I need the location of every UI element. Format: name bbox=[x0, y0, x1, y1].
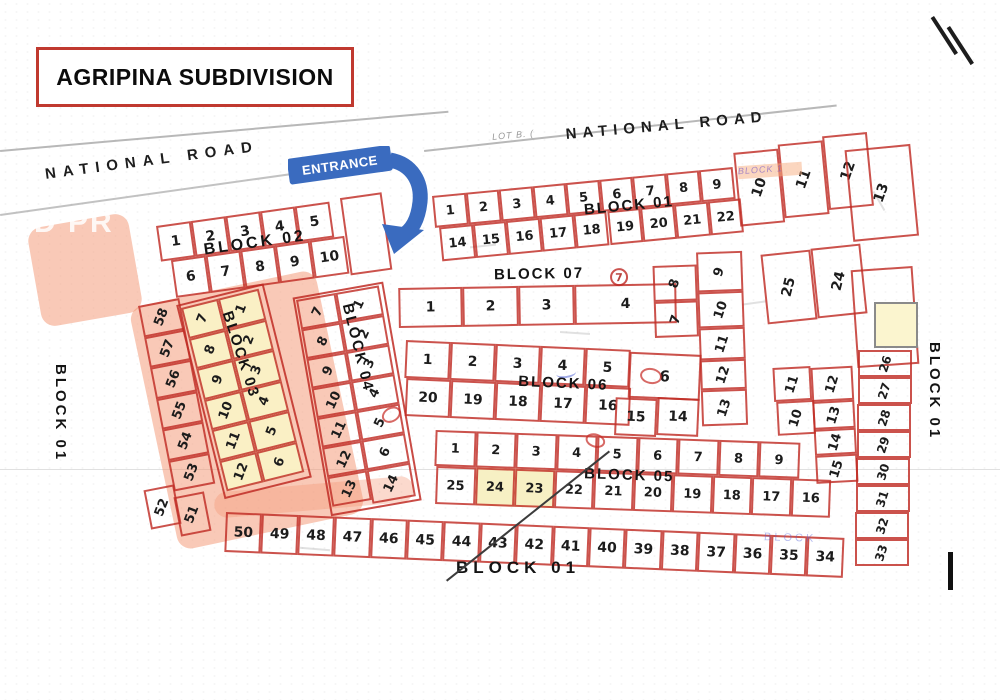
lot-number: 44 bbox=[452, 534, 472, 549]
lot-cell: 15 bbox=[614, 397, 658, 437]
lot-number: 5 bbox=[602, 361, 612, 375]
lot-cell: 48 bbox=[297, 515, 335, 556]
lot-number: 56 bbox=[164, 369, 183, 391]
lot-number: 10 bbox=[787, 407, 805, 428]
lot-number: 17 bbox=[762, 490, 781, 504]
lot-cell: 46 bbox=[370, 518, 408, 559]
lot-cell: 13 bbox=[701, 389, 748, 427]
lot-cell: 3 bbox=[515, 433, 557, 470]
lot-number: 1 bbox=[422, 353, 432, 367]
lot-number: 26 bbox=[877, 354, 894, 374]
lot-number: 14 bbox=[448, 235, 467, 250]
lot-cell: 16 bbox=[790, 478, 831, 517]
lot-number: 7 bbox=[669, 313, 684, 326]
lot-number: 20 bbox=[649, 216, 668, 231]
lot-number: 8 bbox=[254, 259, 266, 274]
lot-number: 34 bbox=[815, 550, 835, 565]
lot-number: 58 bbox=[152, 307, 171, 329]
lot-cell: 25 bbox=[760, 250, 817, 325]
lot-number: 19 bbox=[463, 393, 483, 408]
lot-number: 33 bbox=[873, 543, 890, 563]
lot-number: 14 bbox=[827, 431, 845, 452]
lot-number: 25 bbox=[780, 276, 798, 298]
lot-number: 8 bbox=[668, 277, 683, 290]
lot-cell: 1 bbox=[432, 193, 468, 228]
lot-number: 51 bbox=[183, 503, 202, 525]
lot-number: 18 bbox=[508, 395, 528, 410]
lot-number: 54 bbox=[176, 430, 195, 452]
lot-number: 24 bbox=[830, 270, 848, 292]
subdivision-map: AGRIPINA SUBDIVISION NATIONAL ROAD NATIO… bbox=[0, 0, 1000, 700]
lot-cell: 29 bbox=[857, 431, 911, 458]
lot-number: 35 bbox=[779, 548, 799, 563]
lot-cell: 13 bbox=[845, 144, 920, 242]
lot-number: 40 bbox=[597, 541, 617, 556]
lot-cell: 11 bbox=[772, 366, 812, 402]
lot-cell: 2 bbox=[475, 431, 517, 468]
lot-cell: 19 bbox=[450, 380, 497, 420]
lot-cell: 12 bbox=[700, 359, 747, 391]
lot-number: 13 bbox=[872, 181, 892, 204]
lot-cell: 1 bbox=[404, 340, 451, 380]
lot-number: 9 bbox=[712, 178, 722, 192]
lot-cell: 1 bbox=[156, 221, 196, 262]
lot-number: 14 bbox=[668, 410, 688, 425]
lot-number: 52 bbox=[153, 496, 172, 518]
lot-number: 13 bbox=[715, 397, 733, 418]
lot-number: 24 bbox=[486, 480, 505, 494]
watermark-text: D PR bbox=[34, 206, 114, 240]
lot-number: 6 bbox=[185, 269, 197, 284]
lot-cell: 3 bbox=[499, 186, 535, 221]
lot-number: 19 bbox=[616, 219, 635, 234]
lot-cell: 38 bbox=[661, 530, 699, 571]
lot-number: 32 bbox=[874, 516, 891, 536]
lot-number: 21 bbox=[683, 213, 702, 228]
lot-number: 3 bbox=[512, 197, 522, 211]
lot-number: 9 bbox=[774, 453, 783, 466]
lot-cell: 17 bbox=[540, 215, 577, 252]
lot-cell: 9 bbox=[696, 251, 743, 293]
lot-cell: 11 bbox=[699, 327, 746, 361]
lot-number: 38 bbox=[670, 544, 690, 559]
lot-number: 16 bbox=[801, 491, 820, 505]
lot-number: 50 bbox=[233, 525, 253, 540]
lot-cell: 50 bbox=[224, 512, 262, 553]
lot-number: 15 bbox=[626, 410, 646, 425]
lot-number: 36 bbox=[742, 547, 762, 562]
national-road-label-right: NATIONAL ROAD bbox=[565, 108, 768, 143]
lot-cell: 40 bbox=[588, 527, 626, 568]
lot-number: 11 bbox=[783, 373, 801, 394]
lot-cell: 20 bbox=[405, 378, 452, 418]
lot-number: 11 bbox=[713, 333, 731, 354]
lot-number: 25 bbox=[446, 479, 465, 493]
lot-cell: 15 bbox=[815, 454, 858, 484]
lot-number: 3 bbox=[512, 357, 522, 371]
lot-cell: 25 bbox=[435, 466, 476, 505]
lot-number: 6 bbox=[653, 449, 662, 462]
lot-number: 28 bbox=[876, 408, 893, 428]
lot-cell: 14 bbox=[656, 397, 700, 437]
lot-number: 18 bbox=[723, 489, 742, 503]
lot-cell: 2 bbox=[465, 190, 501, 225]
lot-number: 30 bbox=[875, 462, 892, 482]
lot-number: 2 bbox=[467, 355, 477, 369]
block01-left-label: BLOCK 01 bbox=[52, 364, 69, 496]
map-title-text: AGRIPINA SUBDIVISION bbox=[56, 64, 334, 91]
lot-number: 10 bbox=[749, 176, 769, 199]
lot-number: 57 bbox=[158, 338, 177, 360]
lot-number: 45 bbox=[415, 533, 435, 548]
map-title: AGRIPINA SUBDIVISION bbox=[36, 47, 354, 107]
yellow-highlight-square bbox=[874, 302, 918, 348]
lot-number: 48 bbox=[306, 528, 326, 543]
lot-number: 41 bbox=[561, 539, 581, 554]
lot-cell: 2 bbox=[449, 342, 496, 382]
lot-number: 8 bbox=[678, 181, 688, 195]
lot-number: 18 bbox=[582, 223, 601, 238]
block01-bottom-label: BLOCK 01 bbox=[456, 558, 580, 578]
lot-cell: 16 bbox=[506, 218, 543, 255]
scale-tick bbox=[948, 552, 953, 590]
lot-cell: 6 bbox=[628, 352, 702, 401]
lot-number: 15 bbox=[481, 232, 500, 247]
lot-cell: 45 bbox=[406, 520, 444, 561]
entrance-arrow-shaft bbox=[390, 160, 420, 236]
lot-cell: 14 bbox=[814, 428, 857, 456]
lot-number: 12 bbox=[714, 364, 732, 385]
lot-cell: 31 bbox=[856, 485, 910, 512]
lot-cell: 6 bbox=[171, 255, 211, 298]
lot-cell: 9 bbox=[699, 167, 735, 202]
lot-cell: 30 bbox=[856, 458, 910, 485]
lot-number: 17 bbox=[553, 396, 573, 411]
lot-cell: 26 bbox=[858, 350, 912, 377]
lot-cell: 7 bbox=[677, 438, 719, 475]
lot-number: 1 bbox=[451, 442, 460, 455]
lot-cell: 15 bbox=[473, 221, 510, 258]
lot-cell: 3 bbox=[518, 285, 575, 326]
block05-label: BLOCK 05 bbox=[584, 465, 675, 485]
lot-number: 49 bbox=[270, 527, 290, 542]
lot-cell: 1 bbox=[398, 287, 463, 328]
lot-number: 4 bbox=[545, 194, 555, 208]
lot-cell: 28 bbox=[857, 404, 911, 431]
lot-number: 39 bbox=[633, 542, 653, 557]
lot-number: 20 bbox=[418, 391, 438, 406]
lot-number: 3 bbox=[531, 445, 540, 458]
lot-number: 16 bbox=[515, 229, 534, 244]
lot-number: 7 bbox=[693, 451, 702, 464]
lot-number: 55 bbox=[170, 399, 189, 421]
lot-number: 5 bbox=[612, 448, 621, 461]
lot-number: 22 bbox=[716, 210, 735, 225]
lot-number: 8 bbox=[734, 452, 743, 465]
lot-number: 37 bbox=[706, 545, 726, 560]
lot-cell: 4 bbox=[532, 183, 568, 218]
lot-cell: 19 bbox=[672, 474, 713, 513]
lot-number: 47 bbox=[342, 530, 362, 545]
lot-number: 9 bbox=[712, 265, 727, 278]
lot-number: 15 bbox=[828, 458, 846, 479]
faded-block-text: BLOCK bbox=[764, 531, 817, 545]
entrance-arrow: ENTRANCE bbox=[288, 146, 430, 264]
lot-number: 21 bbox=[604, 484, 623, 498]
lot-cell: 47 bbox=[333, 517, 371, 558]
lot-number: 17 bbox=[548, 226, 567, 241]
lot-cell: 7 bbox=[654, 300, 699, 338]
lot-cell: 11 bbox=[778, 140, 830, 218]
lot-cell: 2 bbox=[462, 286, 519, 327]
lot-number: 2 bbox=[486, 299, 496, 313]
lot-cell: 12 bbox=[810, 366, 854, 402]
lot-number: 2 bbox=[491, 443, 500, 456]
lot-number: 7 bbox=[220, 264, 232, 279]
lot-cell: 10 bbox=[776, 400, 816, 436]
lot-cell: 17 bbox=[751, 477, 792, 516]
lot-cell: 39 bbox=[624, 529, 662, 570]
lot-number: 13 bbox=[825, 404, 843, 425]
lot-number: 1 bbox=[445, 203, 455, 217]
lot-number: 19 bbox=[683, 487, 702, 501]
lot-number: 46 bbox=[379, 531, 399, 546]
lot-number: 27 bbox=[876, 381, 893, 401]
lot-number: 1 bbox=[426, 300, 436, 314]
lot-cell: 33 bbox=[855, 539, 909, 566]
lot-cell: 10 bbox=[697, 291, 744, 329]
lot-cell: 1 bbox=[434, 430, 476, 467]
lot-cell: 8 bbox=[652, 264, 697, 302]
lot-number: 3 bbox=[542, 298, 552, 312]
lot-cell: 23 bbox=[514, 469, 555, 508]
lot-cell: 27 bbox=[858, 377, 912, 404]
lot-number: 42 bbox=[524, 538, 544, 553]
lot-number: 20 bbox=[644, 486, 663, 500]
block07-label: BLOCK 07 bbox=[494, 265, 584, 284]
lot-cell: 18 bbox=[711, 476, 752, 515]
lot-cell: 32 bbox=[855, 512, 909, 539]
lot-cell: 9 bbox=[758, 441, 800, 478]
lot-cell: 49 bbox=[261, 514, 299, 555]
block01-right-label: BLOCK 01 bbox=[926, 342, 943, 476]
lot-number: 4 bbox=[572, 446, 581, 459]
lot-number: 10 bbox=[712, 299, 730, 320]
lot-number: 1 bbox=[170, 234, 182, 249]
lot-cell: 21 bbox=[674, 202, 711, 239]
lot-cell: 37 bbox=[697, 532, 735, 573]
lot-cell: 14 bbox=[439, 224, 476, 261]
lot-number: 4 bbox=[621, 297, 631, 311]
lot-number: 12 bbox=[823, 373, 841, 394]
lot-cell: 24 bbox=[475, 467, 516, 506]
lot-number: 31 bbox=[874, 489, 891, 509]
lot-number: 23 bbox=[525, 482, 544, 496]
scan-mark bbox=[560, 331, 590, 335]
lot-cell: 13 bbox=[812, 400, 855, 430]
lot-number: 29 bbox=[875, 435, 892, 455]
lot-cell: 8 bbox=[718, 440, 760, 477]
lot-number: 53 bbox=[182, 461, 201, 483]
lot-cell: 10 bbox=[733, 149, 785, 227]
scan-mark bbox=[742, 300, 766, 305]
lot-number: 2 bbox=[478, 200, 488, 214]
